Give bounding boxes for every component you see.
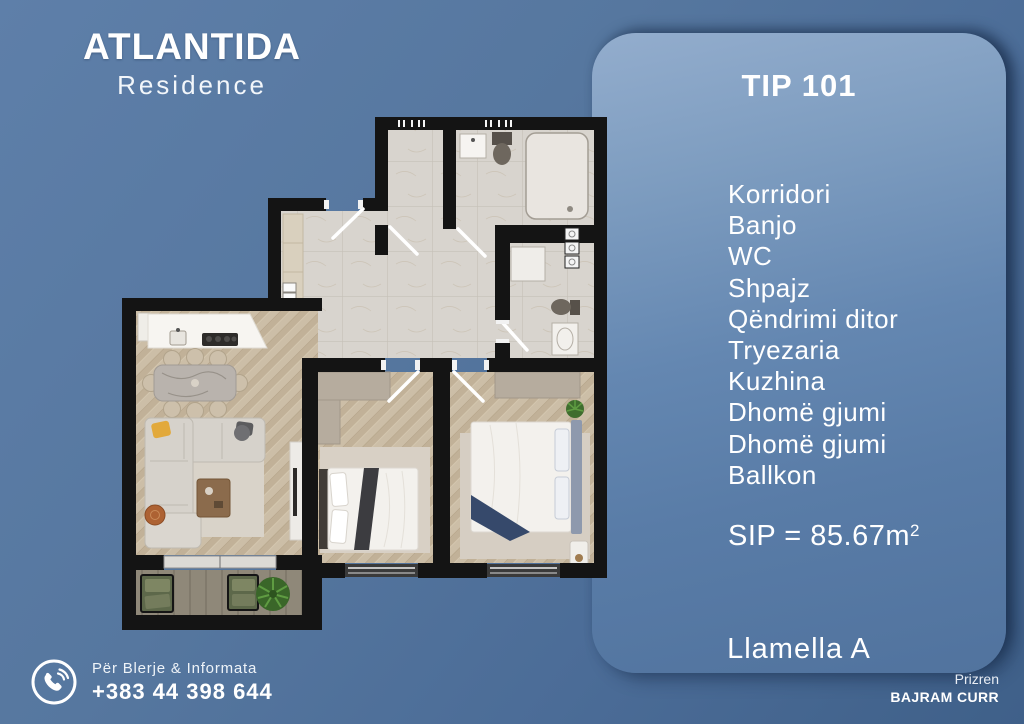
room-item: WC xyxy=(728,241,898,272)
room-item: Korridori xyxy=(728,179,898,210)
poster: ATLANTIDA Residence TIP 101 KorridoriBan… xyxy=(0,0,1024,724)
brand-title: ATLANTIDA xyxy=(62,26,322,68)
brand-subtitle: Residence xyxy=(62,70,322,101)
hall-cabinet xyxy=(283,214,303,302)
room-list: KorridoriBanjoWCShpajzQëndrimi ditorTrye… xyxy=(728,179,898,491)
agent-label: BAJRAM CURR xyxy=(890,689,999,705)
contact-block: Për Blerje & Informata +383 44 398 644 xyxy=(30,658,273,706)
washer-stack xyxy=(565,228,579,268)
tv-unit xyxy=(290,442,303,540)
city-label: Prizren xyxy=(890,671,999,687)
contact-label: Për Blerje & Informata xyxy=(92,660,273,677)
floor-plan xyxy=(118,117,607,630)
room-item: Qëndrimi ditor xyxy=(728,304,898,335)
room-item: Kuzhina xyxy=(728,366,898,397)
room-item: Dhomë gjumi xyxy=(728,397,898,428)
tip-title: TIP 101 xyxy=(592,68,1006,104)
contact-phone: +383 44 398 644 xyxy=(92,679,273,705)
room-item: Shpajz xyxy=(728,273,898,304)
location-block: Prizren BAJRAM CURR xyxy=(890,671,999,705)
coffee-table xyxy=(197,479,230,517)
block-label: Llamella A xyxy=(592,633,1006,666)
brand: ATLANTIDA Residence xyxy=(62,26,322,101)
info-panel: TIP 101 KorridoriBanjoWCShpajzQëndrimi d… xyxy=(592,33,1006,673)
area-sup: 2 xyxy=(910,521,920,540)
room-item: Tryezaria xyxy=(728,335,898,366)
kitchen xyxy=(138,313,267,348)
area-value: SIP = 85.67m2 xyxy=(728,520,920,553)
room-item: Dhomë gjumi xyxy=(728,429,898,460)
room-item: Banjo xyxy=(728,210,898,241)
room-item: Ballkon xyxy=(728,460,898,491)
area-label: SIP = 85.67m xyxy=(728,520,910,552)
phone-icon xyxy=(30,658,78,706)
